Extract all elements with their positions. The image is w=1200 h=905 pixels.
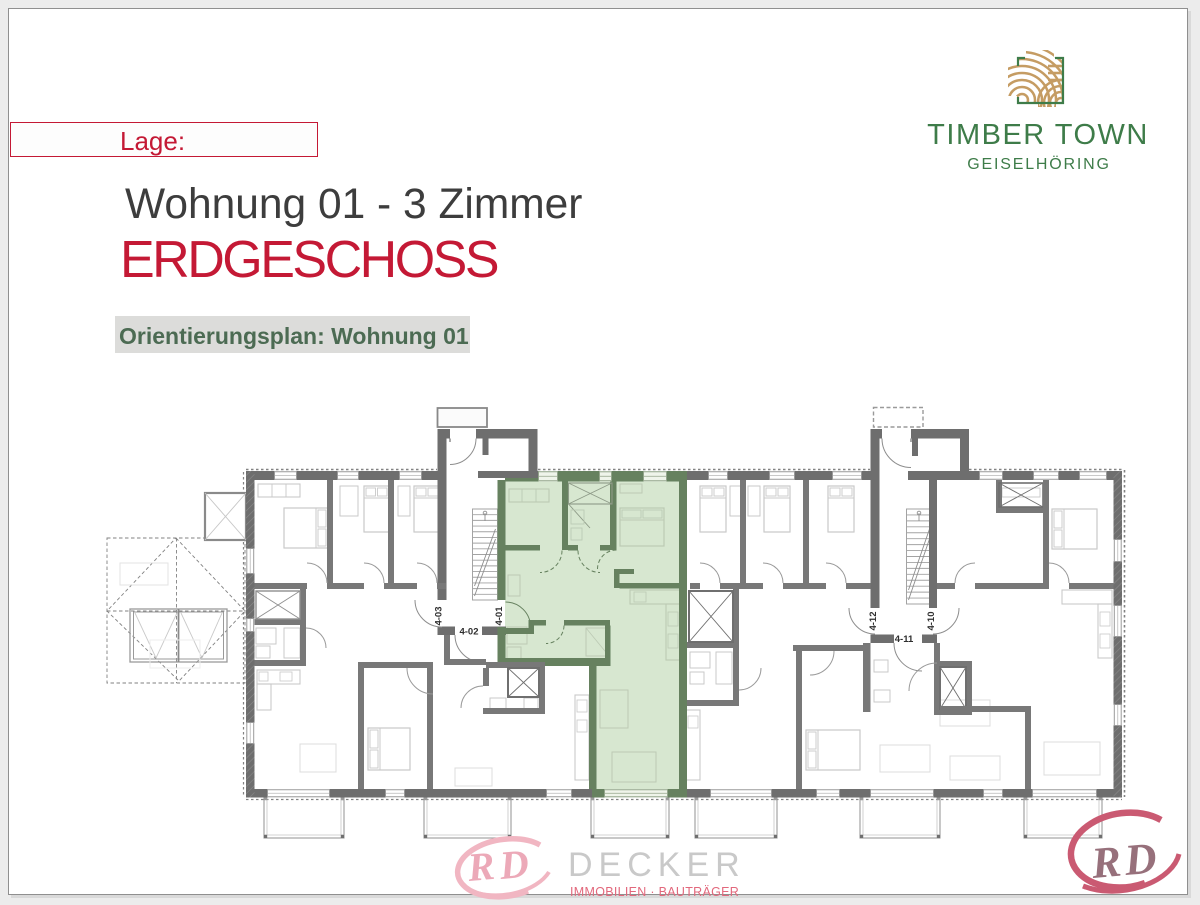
svg-text:4-02: 4-02 [459,627,478,638]
svg-text:4-10: 4-10 [926,611,937,630]
svg-text:4-11: 4-11 [895,634,914,645]
svg-text:4-03: 4-03 [434,606,445,625]
svg-text:4-12: 4-12 [868,611,879,630]
svg-text:DECKER: DECKER [568,846,746,884]
svg-text:R: R [1089,837,1124,888]
svg-text:D: D [497,841,531,888]
svg-text:R: R [465,843,497,890]
svg-text:D: D [1122,833,1159,885]
svg-text:IMMOBILIEN · BAUTRÄGER: IMMOBILIEN · BAUTRÄGER [570,885,739,899]
svg-text:TIMBER TOWN: TIMBER TOWN [927,119,1149,151]
svg-text:GEISELHÖRING: GEISELHÖRING [967,155,1110,173]
svg-text:4-01: 4-01 [494,606,505,626]
